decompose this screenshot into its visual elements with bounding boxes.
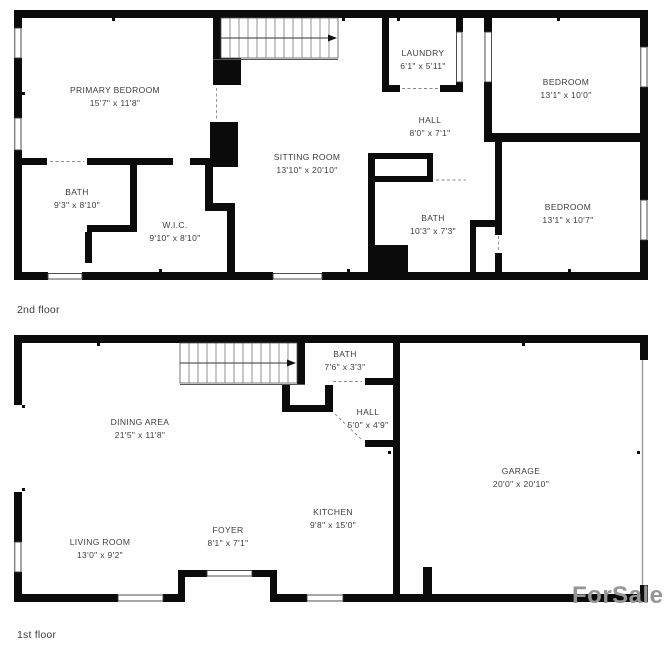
second-floor-stairs-icon xyxy=(213,18,338,60)
room-name: KITCHEN xyxy=(310,506,356,519)
room-dims: 7'6" x 3'3" xyxy=(324,361,365,374)
room-name: HALL xyxy=(409,114,450,127)
room-dims: 13'1" x 10'0" xyxy=(540,89,591,102)
room-label-bedroom-bottom: BEDROOM 13'1" x 10'7" xyxy=(542,201,593,226)
floorplan-canvas: PRIMARY BEDROOM 15'7" x 11'8" BATH 9'3" … xyxy=(0,0,669,657)
room-name: LIVING ROOM xyxy=(70,536,131,549)
room-label-dining-area: DINING AREA 21'5" x 11'8" xyxy=(111,416,170,441)
room-label-sitting-room: SITTING ROOM 13'10" x 20'10" xyxy=(274,151,341,176)
room-label-primary-bedroom: PRIMARY BEDROOM 15'7" x 11'8" xyxy=(70,84,160,109)
room-dims: 8'0" x 7'1" xyxy=(409,127,450,140)
room-label-bath-middle: BATH 10'3" x 7'3" xyxy=(410,212,456,237)
room-name: LAUNDRY xyxy=(400,47,445,60)
room-name: PRIMARY BEDROOM xyxy=(70,84,160,97)
room-name: BATH xyxy=(410,212,456,225)
room-dims: 9'8" x 15'0" xyxy=(310,519,356,532)
room-name: BEDROOM xyxy=(542,201,593,214)
room-label-garage: GARAGE 20'0" x 20'10" xyxy=(493,465,549,490)
room-name: BATH xyxy=(324,348,365,361)
room-label-foyer: FOYER 8'1" x 7'1" xyxy=(207,524,248,549)
room-name: HALL xyxy=(347,406,388,419)
room-label-bedroom-top: BEDROOM 13'1" x 10'0" xyxy=(540,76,591,101)
room-dims: 5'0" x 4'9" xyxy=(347,419,388,432)
room-name: SITTING ROOM xyxy=(274,151,341,164)
room-dims: 9'3" x 8'10" xyxy=(54,199,100,212)
room-dims: 6'1" x 5'11" xyxy=(400,60,445,73)
room-name: BATH xyxy=(54,186,100,199)
room-dims: 9'10" x 8'10" xyxy=(149,232,200,245)
room-label-living-room: LIVING ROOM 13'0" x 9'2" xyxy=(70,536,131,561)
room-name: GARAGE xyxy=(493,465,549,478)
floor-label-first: 1st floor xyxy=(17,629,56,641)
room-dims: 21'5" x 11'8" xyxy=(111,429,170,442)
room-label-bath-1st: BATH 7'6" x 3'3" xyxy=(324,348,365,373)
room-dims: 13'1" x 10'7" xyxy=(542,214,593,227)
room-name: FOYER xyxy=(207,524,248,537)
room-dims: 8'1" x 7'1" xyxy=(207,537,248,550)
room-dims: 10'3" x 7'3" xyxy=(410,225,456,238)
room-name: W.I.C. xyxy=(149,219,200,232)
first-floor-walls xyxy=(14,335,648,602)
watermark: ForSale xyxy=(572,582,664,610)
room-name: DINING AREA xyxy=(111,416,170,429)
room-dims: 15'7" x 11'8" xyxy=(70,97,160,110)
room-label-hall-2nd: HALL 8'0" x 7'1" xyxy=(409,114,450,139)
room-label-wic: W.I.C. 9'10" x 8'10" xyxy=(149,219,200,244)
room-dims: 13'0" x 9'2" xyxy=(70,549,131,562)
room-label-kitchen: KITCHEN 9'8" x 15'0" xyxy=(310,506,356,531)
room-name: BEDROOM xyxy=(540,76,591,89)
room-label-laundry: LAUNDRY 6'1" x 5'11" xyxy=(400,47,445,72)
floor-label-second: 2nd floor xyxy=(17,304,60,316)
room-dims: 20'0" x 20'10" xyxy=(493,478,549,491)
room-label-bath-left: BATH 9'3" x 8'10" xyxy=(54,186,100,211)
room-dims: 13'10" x 20'10" xyxy=(274,164,341,177)
first-floor-stairs-icon xyxy=(180,343,305,385)
room-label-hall-1st: HALL 5'0" x 4'9" xyxy=(347,406,388,431)
